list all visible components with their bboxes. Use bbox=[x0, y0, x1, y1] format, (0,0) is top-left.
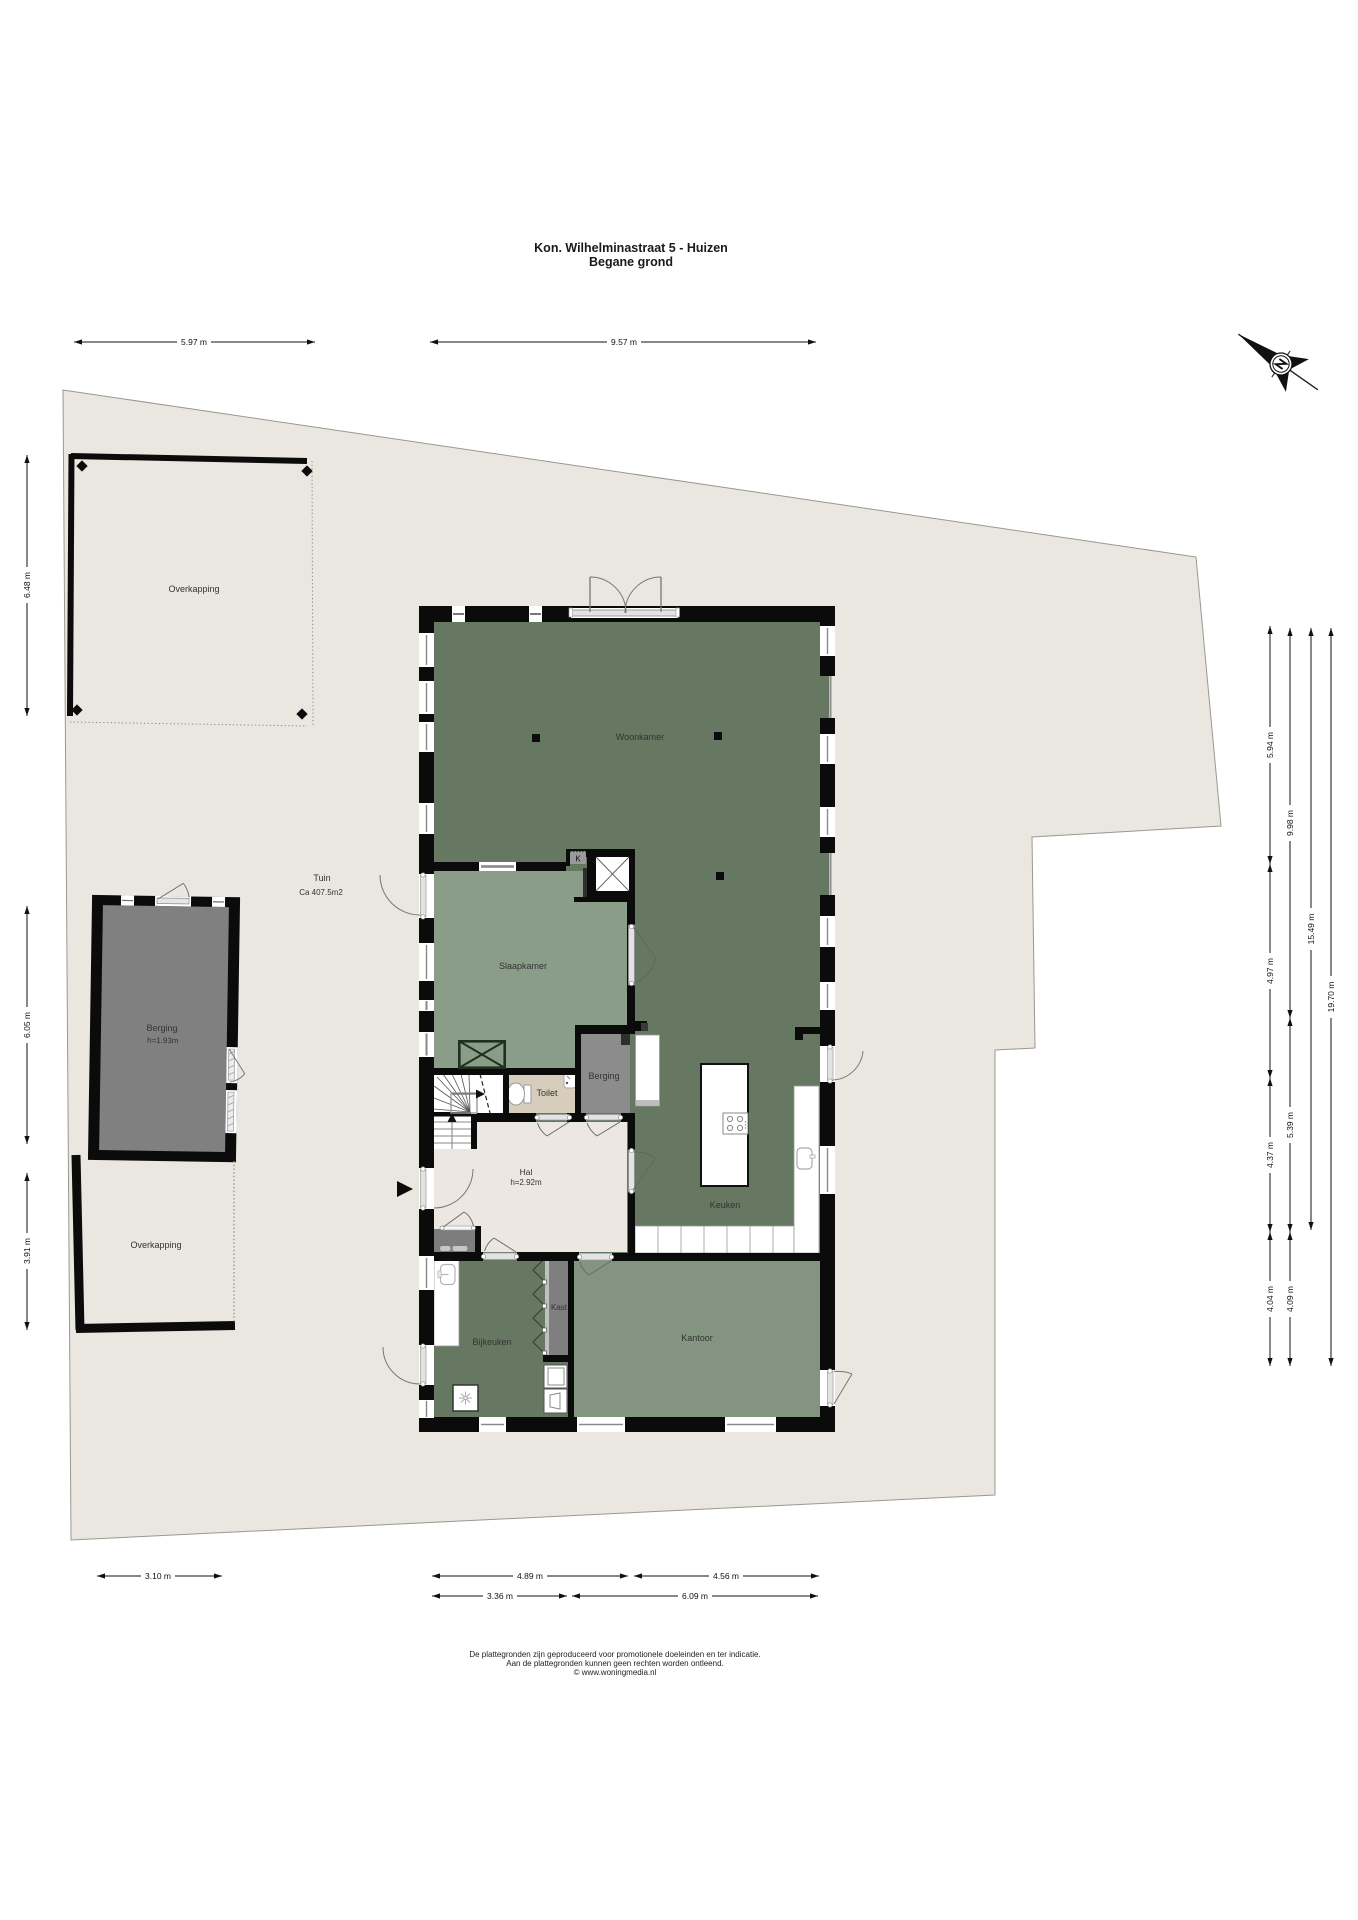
svg-text:Kast: Kast bbox=[551, 1303, 568, 1312]
svg-text:Overkapping: Overkapping bbox=[130, 1240, 181, 1250]
svg-text:Slaapkamer: Slaapkamer bbox=[499, 961, 547, 971]
svg-text:15.49 m: 15.49 m bbox=[1306, 914, 1316, 945]
svg-text:6.48 m: 6.48 m bbox=[22, 572, 32, 598]
svg-text:h=2.92m: h=2.92m bbox=[510, 1178, 542, 1187]
svg-text:3.10 m: 3.10 m bbox=[145, 1571, 171, 1581]
svg-text:h=1.93m: h=1.93m bbox=[147, 1036, 179, 1045]
svg-text:3.36 m: 3.36 m bbox=[487, 1591, 513, 1601]
svg-text:Begane grond: Begane grond bbox=[589, 255, 673, 269]
svg-text:Berging: Berging bbox=[588, 1071, 619, 1081]
svg-text:4.56 m: 4.56 m bbox=[713, 1571, 739, 1581]
svg-text:Kantoor: Kantoor bbox=[681, 1333, 713, 1343]
svg-text:Hal: Hal bbox=[520, 1167, 533, 1177]
svg-text:4.37 m: 4.37 m bbox=[1265, 1142, 1275, 1168]
svg-text:9.98 m: 9.98 m bbox=[1285, 810, 1295, 836]
svg-text:Toilet: Toilet bbox=[536, 1088, 558, 1098]
svg-text:Tuin: Tuin bbox=[313, 873, 330, 883]
svg-text:4.97 m: 4.97 m bbox=[1265, 958, 1275, 984]
svg-text:Aan de plattegronden kunnen ge: Aan de plattegronden kunnen geen rechten… bbox=[506, 1659, 724, 1668]
svg-text:Overkapping: Overkapping bbox=[168, 584, 219, 594]
svg-text:Keuken: Keuken bbox=[710, 1200, 741, 1210]
svg-text:3.91 m: 3.91 m bbox=[22, 1238, 32, 1264]
svg-text:Berging: Berging bbox=[146, 1023, 177, 1033]
svg-text:19.70 m: 19.70 m bbox=[1326, 982, 1336, 1013]
svg-text:5.94 m: 5.94 m bbox=[1265, 732, 1275, 758]
svg-text:Woonkamer: Woonkamer bbox=[616, 732, 664, 742]
svg-text:Bijkeuken: Bijkeuken bbox=[472, 1337, 511, 1347]
svg-text:4.09 m: 4.09 m bbox=[1285, 1286, 1295, 1312]
svg-text:9.57 m: 9.57 m bbox=[611, 337, 637, 347]
svg-text:Kon. Wilhelminastraat 5 - Huiz: Kon. Wilhelminastraat 5 - Huizen bbox=[534, 241, 728, 255]
svg-text:4.89 m: 4.89 m bbox=[517, 1571, 543, 1581]
svg-text:6.05 m: 6.05 m bbox=[22, 1012, 32, 1038]
svg-text:K: K bbox=[575, 855, 581, 864]
svg-text:De plattegronden zijn geproduc: De plattegronden zijn geproduceerd voor … bbox=[469, 1650, 760, 1659]
svg-text:Ca 407.5m2: Ca 407.5m2 bbox=[299, 888, 343, 897]
svg-text:© www.woningmedia.nl: © www.woningmedia.nl bbox=[574, 1668, 657, 1677]
svg-text:5.39 m: 5.39 m bbox=[1285, 1112, 1295, 1138]
svg-text:4.04 m: 4.04 m bbox=[1265, 1286, 1275, 1312]
svg-text:5.97 m: 5.97 m bbox=[181, 337, 207, 347]
svg-text:6.09 m: 6.09 m bbox=[682, 1591, 708, 1601]
